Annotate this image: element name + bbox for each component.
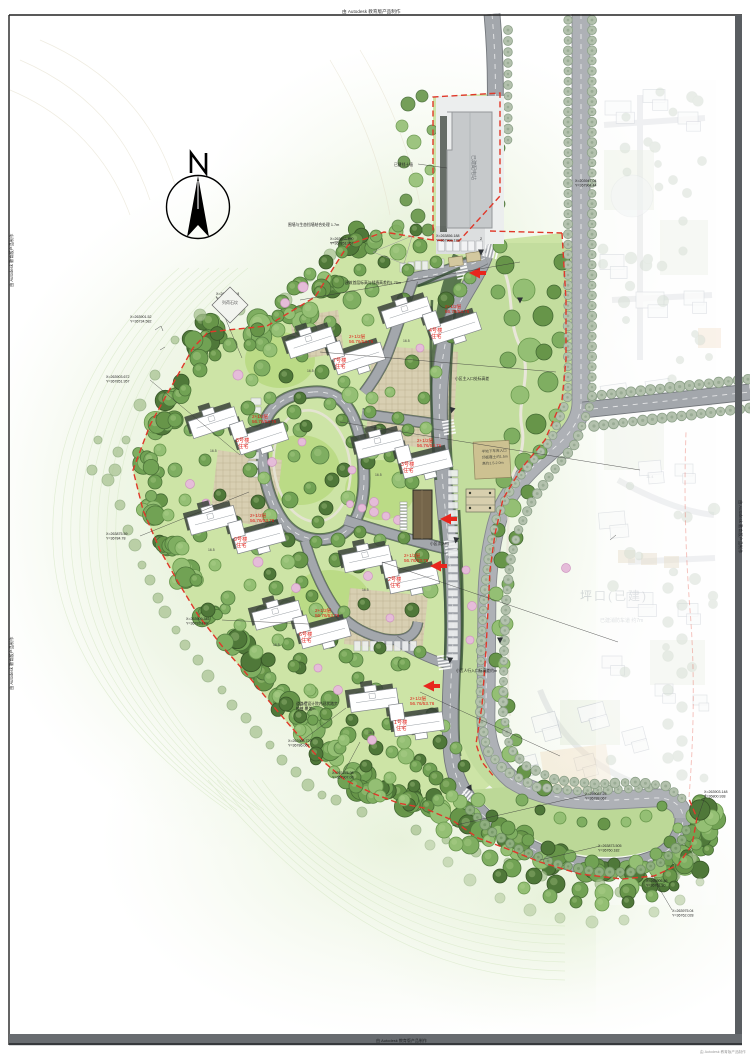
svg-text:16.5: 16.5 — [368, 731, 375, 735]
svg-text:围墙与生态挡墙结合处理 1.7m: 围墙与生态挡墙结合处理 1.7m — [288, 222, 339, 227]
svg-text:X=203947.04: X=203947.04 — [575, 179, 596, 183]
svg-text:由 Autodesk 教育版产品制作: 由 Autodesk 教育版产品制作 — [700, 1049, 746, 1054]
svg-text:56.76/53.76: 56.76/53.76 — [349, 339, 374, 344]
svg-text:16.5: 16.5 — [210, 449, 217, 453]
svg-text:Y=367851.957: Y=367851.957 — [106, 380, 129, 384]
svg-text:小区人行入口标高差约m: 小区人行入口标高差约m — [456, 668, 497, 673]
svg-text:住宅: 住宅 — [396, 724, 406, 732]
svg-text:由 Autodesk 教育版产品制作: 由 Autodesk 教育版产品制作 — [737, 500, 744, 554]
svg-text:已建配电站: 已建配电站 — [470, 155, 477, 180]
svg-text:住宅: 住宅 — [403, 466, 413, 474]
svg-text:X=263875.59: X=263875.59 — [106, 532, 127, 536]
svg-text:X=263975.04: X=263975.04 — [672, 909, 693, 913]
svg-text:9号楼: 9号楼 — [234, 535, 247, 543]
svg-text:种植 覆盖m: 种植 覆盖m — [296, 706, 315, 711]
svg-text:1号楼: 1号楼 — [394, 718, 407, 726]
svg-text:56.76/53.76: 56.76/53.76 — [410, 701, 435, 706]
svg-text:Y=36783.170: Y=36783.170 — [186, 622, 207, 626]
svg-text:住宅: 住宅 — [301, 636, 311, 644]
svg-text:住宅: 住宅 — [431, 332, 441, 340]
svg-text:X=263975.98: X=263975.98 — [332, 771, 353, 775]
svg-text:16.5: 16.5 — [375, 473, 382, 477]
svg-text:3号楼: 3号楼 — [401, 460, 414, 468]
svg-text:Y=36788.067: Y=36788.067 — [585, 797, 606, 801]
svg-text:小区主入口处标高差: 小区主入口处标高差 — [455, 376, 489, 381]
svg-text:16.5: 16.5 — [273, 643, 280, 647]
svg-text:X=259087.25: X=259087.25 — [585, 792, 606, 796]
svg-text:道路摆设计院内现状踏步: 道路摆设计院内现状踏步 — [296, 701, 338, 706]
svg-text:住宅: 住宅 — [236, 541, 246, 549]
svg-text:Y=36760.182: Y=36760.182 — [598, 849, 619, 853]
svg-text:2号楼: 2号楼 — [388, 575, 401, 583]
svg-text:由 Autodesk 教育版产品制作: 由 Autodesk 教育版产品制作 — [376, 1037, 427, 1043]
svg-text:X=263903.672: X=263903.672 — [106, 375, 129, 379]
svg-text:56.76/53.76: 56.76/53.76 — [315, 613, 340, 618]
svg-text:6号楼: 6号楼 — [299, 630, 312, 638]
svg-text:Y=36762.028: Y=36762.028 — [672, 914, 693, 918]
svg-text:Y=36784.78: Y=36784.78 — [106, 537, 126, 541]
svg-text:Y=36786.067: Y=36786.067 — [288, 744, 309, 748]
svg-text:56.76/53.76: 56.76/53.76 — [445, 309, 470, 314]
svg-text:Y=367908.128: Y=367908.128 — [436, 239, 459, 243]
svg-text:2: 2 — [480, 237, 482, 241]
svg-text:16.5: 16.5 — [362, 588, 369, 592]
svg-text:16.5: 16.5 — [208, 548, 215, 552]
svg-text:X=263901.52: X=263901.52 — [130, 315, 151, 319]
svg-text:住宅: 住宅 — [335, 362, 345, 370]
svg-text:X=263908.729: X=263908.729 — [288, 739, 311, 743]
svg-text:Y=36734.582: Y=36734.582 — [130, 320, 151, 324]
svg-text:Y=36800.938: Y=36800.938 — [704, 795, 725, 799]
svg-text:住宅: 住宅 — [390, 581, 400, 589]
svg-text:X=263906.86: X=263906.86 — [646, 879, 667, 883]
svg-text:56.76/53.76: 56.76/53.76 — [417, 443, 442, 448]
svg-text:X=263903.148: X=263903.148 — [704, 790, 727, 794]
svg-text:16.5: 16.5 — [307, 369, 314, 373]
svg-text:建筑首层标高与挡墙高差约1.75m: 建筑首层标高与挡墙高差约1.75m — [345, 280, 401, 285]
svg-text:56.76/53.76: 56.76/53.76 — [252, 419, 277, 424]
svg-text:由 Autodesk 教育版产品制作: 由 Autodesk 教育版产品制作 — [8, 233, 15, 287]
svg-text:已建挡土墙: 已建挡土墙 — [394, 162, 413, 167]
svg-text:8号楼: 8号楼 — [236, 436, 249, 444]
svg-text:X=263873.505: X=263873.505 — [598, 844, 621, 848]
svg-text:X=263909.345: X=263909.345 — [186, 617, 209, 621]
svg-text:列荷石坎: 列荷石坎 — [222, 299, 238, 305]
svg-text:56.76/53.76: 56.76/53.76 — [250, 518, 275, 523]
svg-text:由 Autodesk 教育版产品制作: 由 Autodesk 教育版产品制作 — [8, 636, 15, 690]
svg-text:住宅: 住宅 — [238, 442, 248, 450]
svg-text:Y=367907.08: Y=367907.08 — [332, 776, 353, 780]
svg-text:小区次入口: 小区次入口 — [430, 541, 449, 546]
svg-text:X=263856.188: X=263856.188 — [436, 234, 459, 238]
svg-text:7号楼: 7号楼 — [333, 356, 346, 364]
svg-text:由 Autodesk 教育版产品制作: 由 Autodesk 教育版产品制作 — [342, 8, 401, 15]
svg-text:16.5: 16.5 — [403, 339, 410, 343]
svg-text:Y=367904.44: Y=367904.44 — [575, 184, 596, 188]
svg-text:Y=36761.30: Y=36761.30 — [646, 884, 666, 888]
svg-text:4号楼: 4号楼 — [429, 326, 442, 334]
svg-text:56.76/53.76: 56.76/53.76 — [404, 558, 429, 563]
